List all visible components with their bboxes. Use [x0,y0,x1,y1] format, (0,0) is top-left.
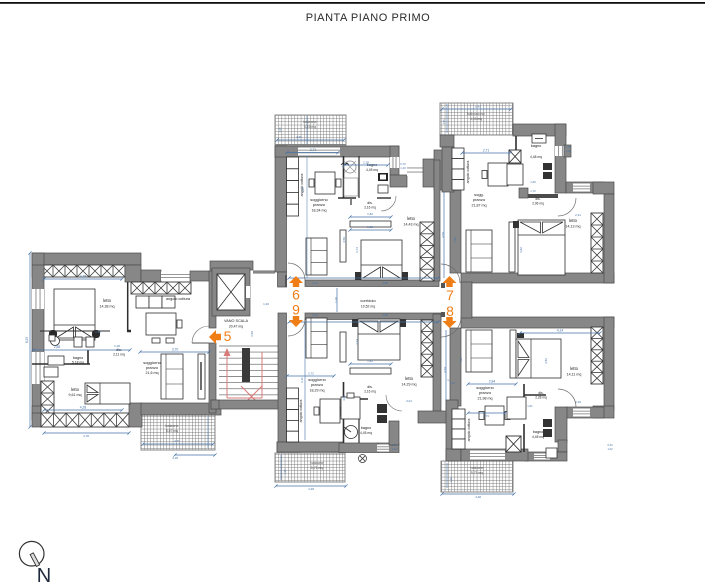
svg-text:14,38 mq: 14,38 mq [100,305,115,309]
svg-text:dis.: dis. [538,391,543,395]
svg-text:4,59: 4,59 [443,367,447,373]
svg-text:pranzo: pranzo [479,390,492,395]
svg-text:letto: letto [405,376,414,381]
svg-text:1,40: 1,40 [391,447,397,451]
svg-text:bagno: bagno [533,430,544,434]
svg-text:5,43: 5,43 [475,105,481,109]
svg-text:4,48: 4,48 [475,495,481,499]
svg-text:PIANTA PIANO PRIMO: PIANTA PIANO PRIMO [306,12,431,24]
svg-text:5,18 mq: 5,18 mq [72,361,84,365]
svg-text:angolo cottura: angolo cottura [467,419,471,442]
svg-text:3,82: 3,82 [519,247,523,253]
svg-text:pranzo: pranzo [146,365,159,370]
svg-text:bagno: bagno [531,144,542,148]
svg-text:14,43 mq: 14,43 mq [404,223,419,227]
svg-text:4,14: 4,14 [557,329,564,333]
svg-text:pranzo: pranzo [473,197,486,202]
svg-text:14,13 mq: 14,13 mq [566,225,581,229]
svg-text:corridoio: corridoio [360,298,376,303]
svg-text:6,11: 6,11 [301,187,305,193]
svg-text:21,87 mq: 21,87 mq [472,204,487,208]
svg-text:14,29 mq: 14,29 mq [402,383,417,387]
svg-text:2,28: 2,28 [363,161,369,165]
svg-text:3,01: 3,01 [406,399,412,403]
svg-text:10,52 mq: 10,52 mq [361,305,375,309]
svg-text:4,45 mq: 4,45 mq [304,125,316,129]
svg-text:letto: letto [407,216,416,221]
svg-text:2,88: 2,88 [54,345,61,349]
svg-text:4,45 mq: 4,45 mq [366,168,378,172]
svg-text:3,14: 3,14 [312,281,318,285]
svg-text:3,88: 3,88 [382,281,388,285]
svg-text:angolo cottura: angolo cottura [299,400,303,423]
svg-text:1,35: 1,35 [283,469,287,475]
svg-text:1,88: 1,88 [367,225,373,229]
svg-text:balcone: balcone [470,466,483,470]
svg-text:dis.: dis. [367,385,373,389]
svg-text:1,40: 1,40 [565,149,571,153]
svg-text:2,31: 2,31 [575,213,581,217]
svg-text:21,98 mq: 21,98 mq [478,397,493,401]
svg-text:9,61 mq: 9,61 mq [69,393,82,397]
svg-text:2,16 mq: 2,16 mq [364,206,376,210]
svg-text:2,71: 2,71 [483,149,490,153]
svg-text:0,30: 0,30 [607,443,613,447]
svg-text:6: 6 [292,287,300,303]
svg-text:2,28 mq: 2,28 mq [535,396,547,400]
svg-text:4,28: 4,28 [80,406,87,410]
svg-text:8,25: 8,25 [25,337,29,343]
svg-text:bagno: bagno [361,426,372,430]
svg-text:4,45: 4,45 [296,135,302,139]
svg-text:2,72: 2,72 [308,372,314,376]
svg-text:1,35: 1,35 [278,127,282,133]
svg-text:3,74: 3,74 [355,247,359,253]
svg-text:5: 5 [224,328,232,344]
svg-text:balcone: balcone [303,120,316,124]
svg-text:4,70: 4,70 [174,439,180,443]
svg-text:angolo cottura: angolo cottura [166,297,191,301]
svg-text:dis.: dis. [535,197,540,201]
svg-text:8: 8 [446,303,454,319]
svg-text:1,62: 1,62 [607,447,613,451]
svg-text:letto: letto [71,387,80,392]
svg-text:balcone: balcone [165,424,178,428]
svg-text:6,11: 6,11 [300,377,304,383]
svg-text:1,40: 1,40 [400,166,406,170]
svg-text:1,82: 1,82 [367,212,373,216]
svg-text:1,14: 1,14 [449,381,455,385]
svg-text:4,28: 4,28 [80,275,87,279]
svg-text:2,88: 2,88 [95,330,101,334]
svg-text:4,78: 4,78 [83,434,89,438]
svg-text:2,06 mq: 2,06 mq [532,202,544,206]
svg-text:letto: letto [570,366,579,371]
svg-text:letto: letto [103,298,112,303]
svg-text:4,59: 4,59 [453,237,457,243]
svg-text:balconcino: balconcino [467,112,484,116]
svg-text:8,87 mq: 8,87 mq [166,429,178,433]
svg-text:1,82: 1,82 [367,359,373,363]
svg-text:1,72: 1,72 [530,189,536,193]
svg-text:4,08 mq: 4,08 mq [470,117,482,121]
svg-text:1,20: 1,20 [334,297,338,303]
svg-text:3,74: 3,74 [355,339,359,345]
svg-text:3,50: 3,50 [250,331,254,337]
svg-text:VANO SCALA: VANO SCALA [224,319,248,323]
svg-text:2,84: 2,84 [489,380,496,384]
svg-text:5,75 mq: 5,75 mq [311,466,323,470]
svg-text:2,73: 2,73 [483,414,489,418]
svg-text:bagno: bagno [73,356,84,360]
svg-text:3,82: 3,82 [544,358,548,364]
svg-text:18,34 mq: 18,34 mq [312,209,327,213]
svg-text:4,08: 4,08 [342,395,346,401]
svg-text:pranzo: pranzo [311,382,324,387]
svg-text:4,18: 4,18 [172,456,178,460]
svg-text:dis.: dis. [367,201,373,205]
svg-text:14,11 mq: 14,11 mq [567,373,582,377]
svg-text:letto: letto [569,218,578,223]
svg-text:2,16 mq: 2,16 mq [364,390,376,394]
svg-text:4,48 mq: 4,48 mq [530,155,542,159]
svg-text:2,11 mq: 2,11 mq [113,353,125,357]
svg-text:pranzo: pranzo [313,202,326,207]
svg-text:0,75: 0,75 [391,443,397,447]
svg-text:21,6 mq: 21,6 mq [146,371,159,375]
svg-text:3,70: 3,70 [172,348,179,352]
svg-text:4,45 mq: 4,45 mq [532,435,544,439]
svg-text:4,59: 4,59 [342,237,346,243]
svg-text:1,20: 1,20 [263,302,269,306]
svg-text:1,61: 1,61 [527,404,533,408]
svg-text:4,57: 4,57 [459,357,463,363]
svg-text:18,29 mq: 18,29 mq [310,389,325,393]
svg-text:angolo cottura: angolo cottura [466,161,470,184]
svg-text:5,75 mq: 5,75 mq [471,471,483,475]
svg-text:4,59: 4,59 [441,232,445,238]
svg-text:1,35: 1,35 [442,119,446,125]
svg-text:N: N [37,565,51,587]
svg-text:9: 9 [292,302,300,318]
svg-text:balcone: balcone [310,461,323,465]
svg-text:3,88: 3,88 [382,313,388,317]
svg-text:1,60: 1,60 [530,180,536,184]
svg-text:1,35: 1,35 [449,477,453,483]
svg-text:3,14: 3,14 [312,313,318,317]
svg-text:7: 7 [446,287,454,303]
svg-text:4,45 mq: 4,45 mq [360,431,372,435]
svg-text:4,48: 4,48 [308,487,314,491]
svg-text:2,71: 2,71 [310,148,317,152]
svg-text:1,28: 1,28 [114,344,120,348]
